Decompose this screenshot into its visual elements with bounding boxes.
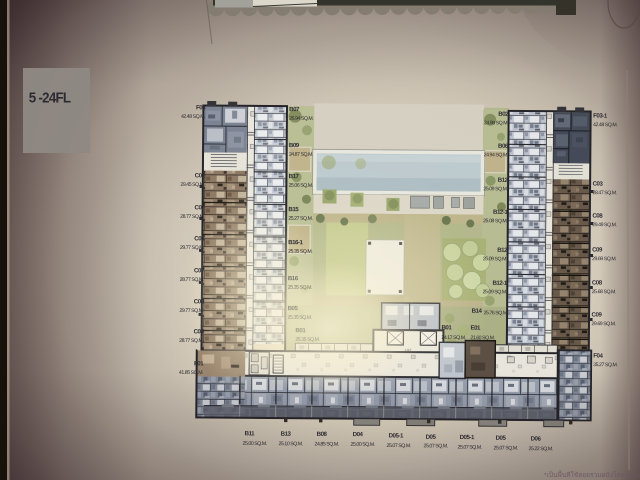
svg-text:*เป็นพื้นที่ใช้สอยรวมผนังโดยปร: *เป็นพื้นที่ใช้สอยรวมผนังโดยประมาณ*	[544, 470, 640, 479]
svg-text:5 -24FL: 5 -24FL	[29, 89, 72, 106]
